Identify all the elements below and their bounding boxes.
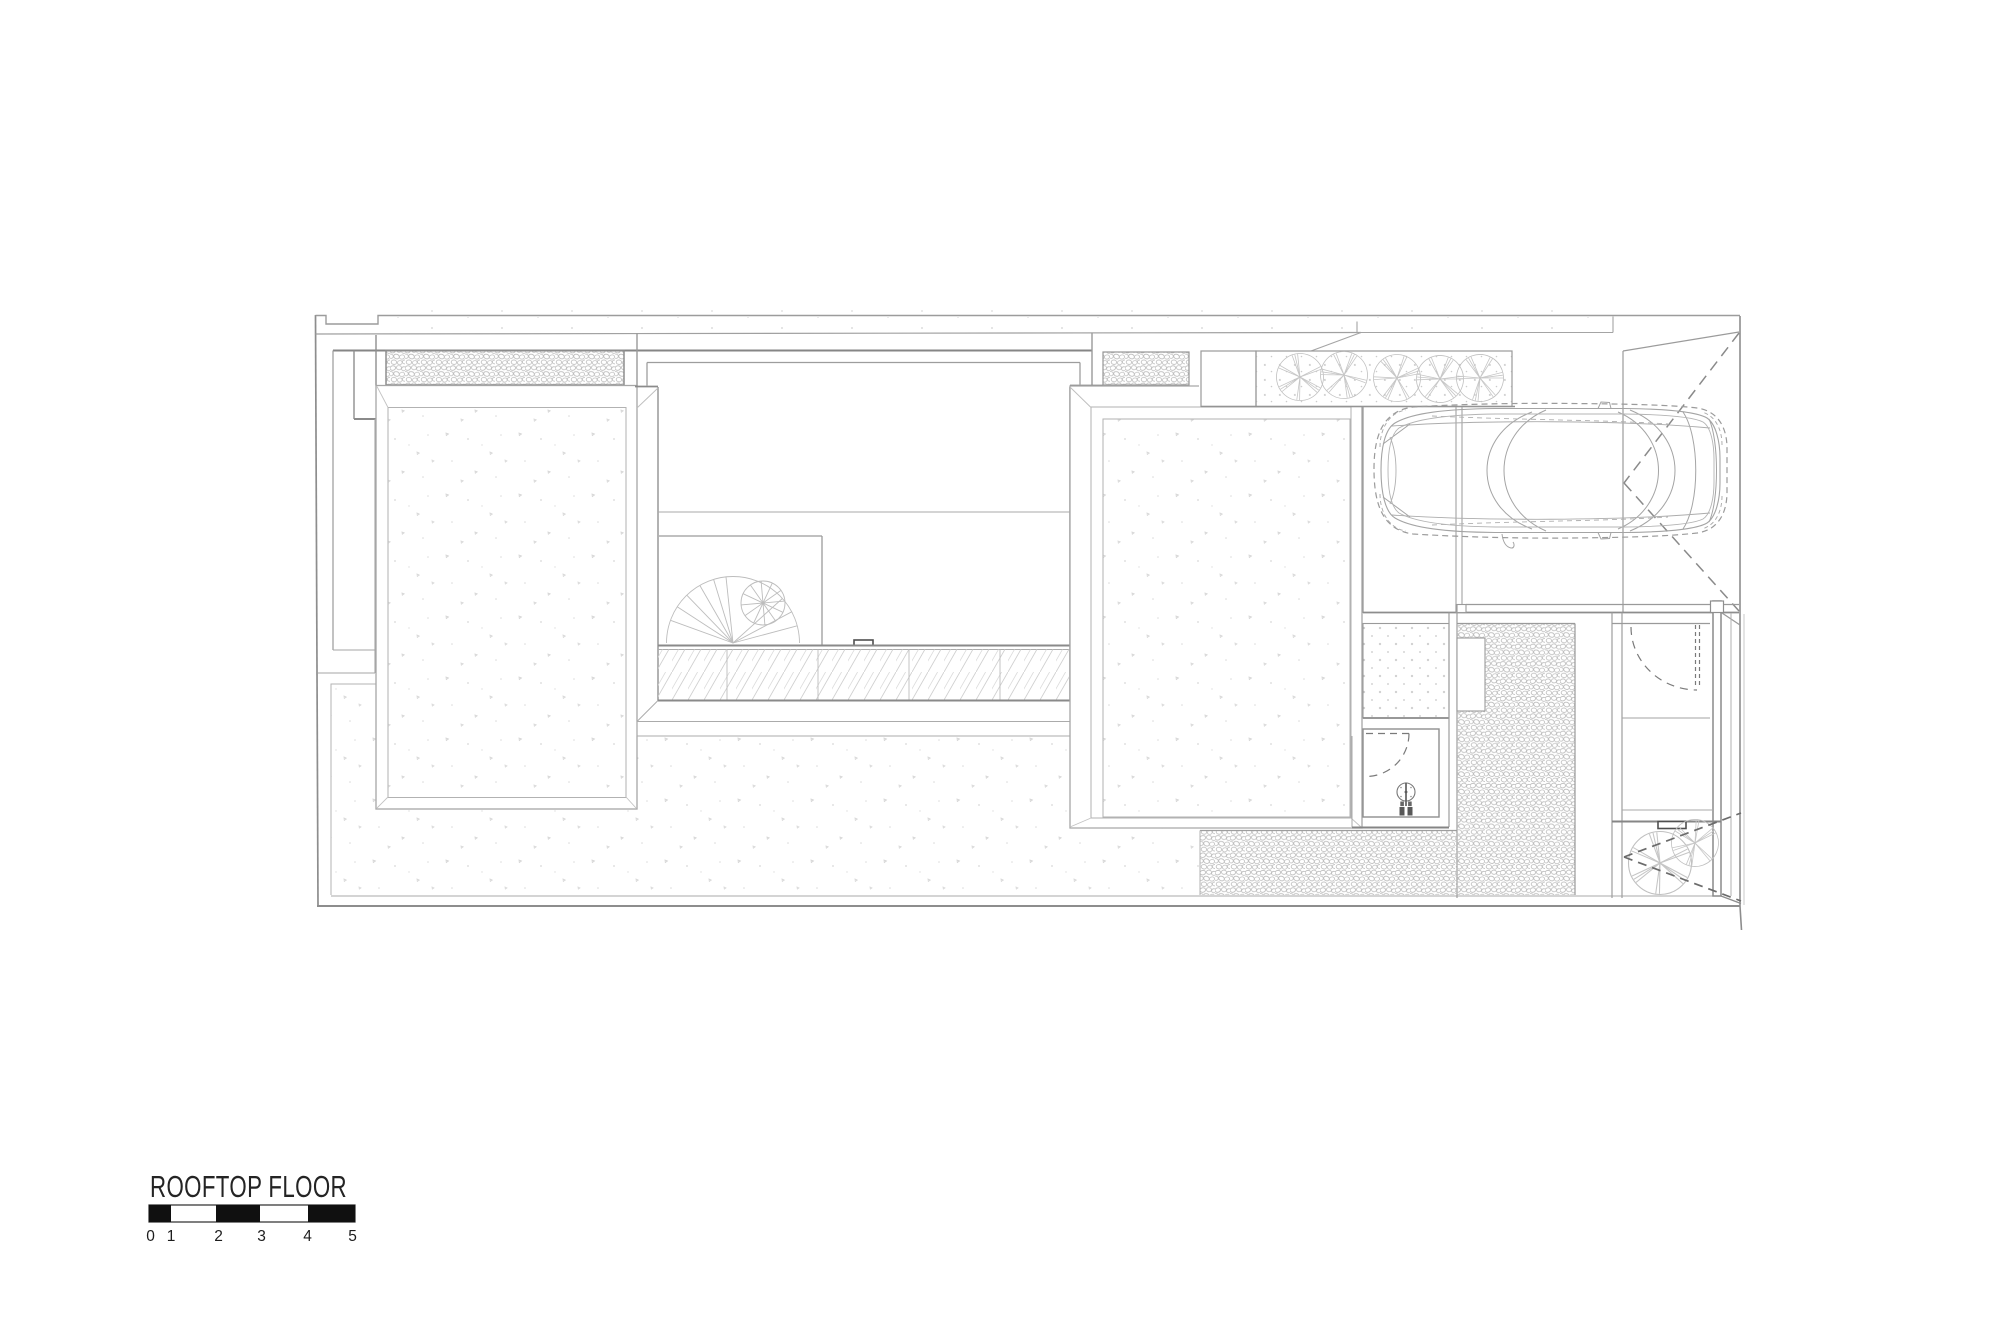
svg-text:1: 1	[167, 1228, 176, 1245]
svg-text:3: 3	[257, 1228, 266, 1245]
svg-text:5: 5	[348, 1228, 357, 1245]
svg-text:0: 0	[146, 1228, 155, 1245]
svg-text:4: 4	[303, 1228, 312, 1245]
svg-text:ROOFTOP FLOOR: ROOFTOP FLOOR	[150, 1169, 347, 1204]
svg-text:2: 2	[214, 1228, 223, 1245]
